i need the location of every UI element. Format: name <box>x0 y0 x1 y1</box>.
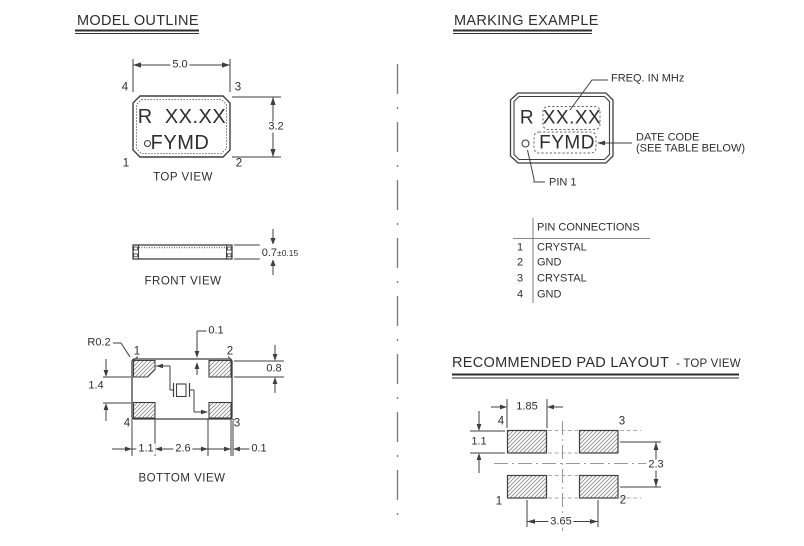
dim-layout-pad-width: 1.85 <box>514 402 539 413</box>
marking-example-title: MARKING EXAMPLE <box>454 14 599 29</box>
dim-layout-horizontal-pitch: 3.65 <box>548 517 573 528</box>
pin-table-header: PIN CONNECTIONS <box>537 223 640 234</box>
marking-datecode: FYMD <box>539 134 595 153</box>
layout-pin-2: 2 <box>620 495 626 507</box>
pin-table-row-4-pin: 4 <box>517 290 523 301</box>
top-view-pin-2: 2 <box>236 158 242 170</box>
bottom-view-label: BOTTOM VIEW <box>138 473 225 485</box>
top-view-marking-line2: FYMD <box>151 133 210 153</box>
layout-pad-4 <box>508 431 547 454</box>
bottom-view-pin-4: 4 <box>124 418 130 430</box>
dim-top-width: 5.0 <box>170 60 189 71</box>
pin-table-row-2-pin: 2 <box>517 258 523 269</box>
model-outline-title: MODEL OUTLINE <box>77 14 199 29</box>
marking-example-drawing <box>511 80 633 182</box>
bottom-pad-1 <box>134 361 156 378</box>
datasheet-drawing-page: MODEL OUTLINE MARKING EXAMPLE RECOMMENDE… <box>0 0 804 546</box>
dim-layout-pad-height: 1.1 <box>469 437 488 448</box>
dim-pad-spacing: 2.6 <box>173 444 192 455</box>
dim-pad-side-offset: 0.1 <box>249 444 268 455</box>
dim-top-height: 3.2 <box>266 122 285 133</box>
top-view-pin-3: 3 <box>235 82 241 94</box>
layout-pin-3: 3 <box>619 416 625 428</box>
bottom-view-pin-2: 2 <box>227 346 233 358</box>
pin-table-row-1-pin: 1 <box>517 243 523 254</box>
top-view-label: TOP VIEW <box>153 172 213 184</box>
crystal-symbol <box>177 384 187 397</box>
pin-table-row-3-pin: 3 <box>517 274 523 285</box>
dim-pad-top-offset: 0.1 <box>206 326 225 337</box>
bottom-pad-2 <box>209 361 231 378</box>
dim-pad-vertical-gap: 1.4 <box>86 381 105 392</box>
bottom-view-pin-3: 3 <box>234 418 240 430</box>
pin1-marker-circle <box>145 141 151 147</box>
pad-layout-title-sub: - TOP VIEW <box>676 358 741 370</box>
layout-pin-4: 4 <box>498 416 504 428</box>
top-view-pin-4: 4 <box>122 82 128 94</box>
callout-datecode-line2: (SEE TABLE BELOW) <box>636 144 745 155</box>
marking-freq: XX.XX <box>543 109 601 128</box>
pin-table-row-3-conn: CRYSTAL <box>537 274 587 285</box>
layout-pad-3 <box>580 431 619 454</box>
pin-table-row-4-conn: GND <box>537 290 561 301</box>
pin-table-row-1-conn: CRYSTAL <box>537 243 587 254</box>
bottom-view-pin-1: 1 <box>134 346 140 358</box>
dim-pad-height: 0.8 <box>264 364 283 375</box>
marking-prefix: R <box>520 109 534 128</box>
pin1-marker-circle <box>522 140 529 147</box>
pad-layout-title: RECOMMENDED PAD LAYOUT- TOP VIEW <box>452 355 741 371</box>
callout-pin1: PIN 1 <box>549 178 577 189</box>
callout-freq: FREQ. IN MHz <box>611 74 684 85</box>
layout-pad-2 <box>580 476 619 499</box>
top-view-pin-1: 1 <box>123 158 129 170</box>
bottom-pad-3 <box>209 403 231 419</box>
bottom-view-drawing <box>103 331 284 456</box>
front-view-label: FRONT VIEW <box>145 276 222 288</box>
pad-layout-title-main: RECOMMENDED PAD LAYOUT <box>452 355 669 371</box>
dim-corner-radius: R0.2 <box>85 338 112 349</box>
layout-pin-1: 1 <box>496 496 502 508</box>
dim-layout-vertical-pitch: 2.3 <box>646 460 665 471</box>
dim-pad-width: 1.1 <box>136 444 155 455</box>
dim-front-thickness: 0.7±0.15 <box>260 244 301 260</box>
pin-table-row-2-conn: GND <box>537 258 561 269</box>
layout-pad-1 <box>508 476 547 499</box>
top-view-marking-line1: R XX.XX <box>138 107 226 127</box>
bottom-pad-4 <box>134 403 156 419</box>
